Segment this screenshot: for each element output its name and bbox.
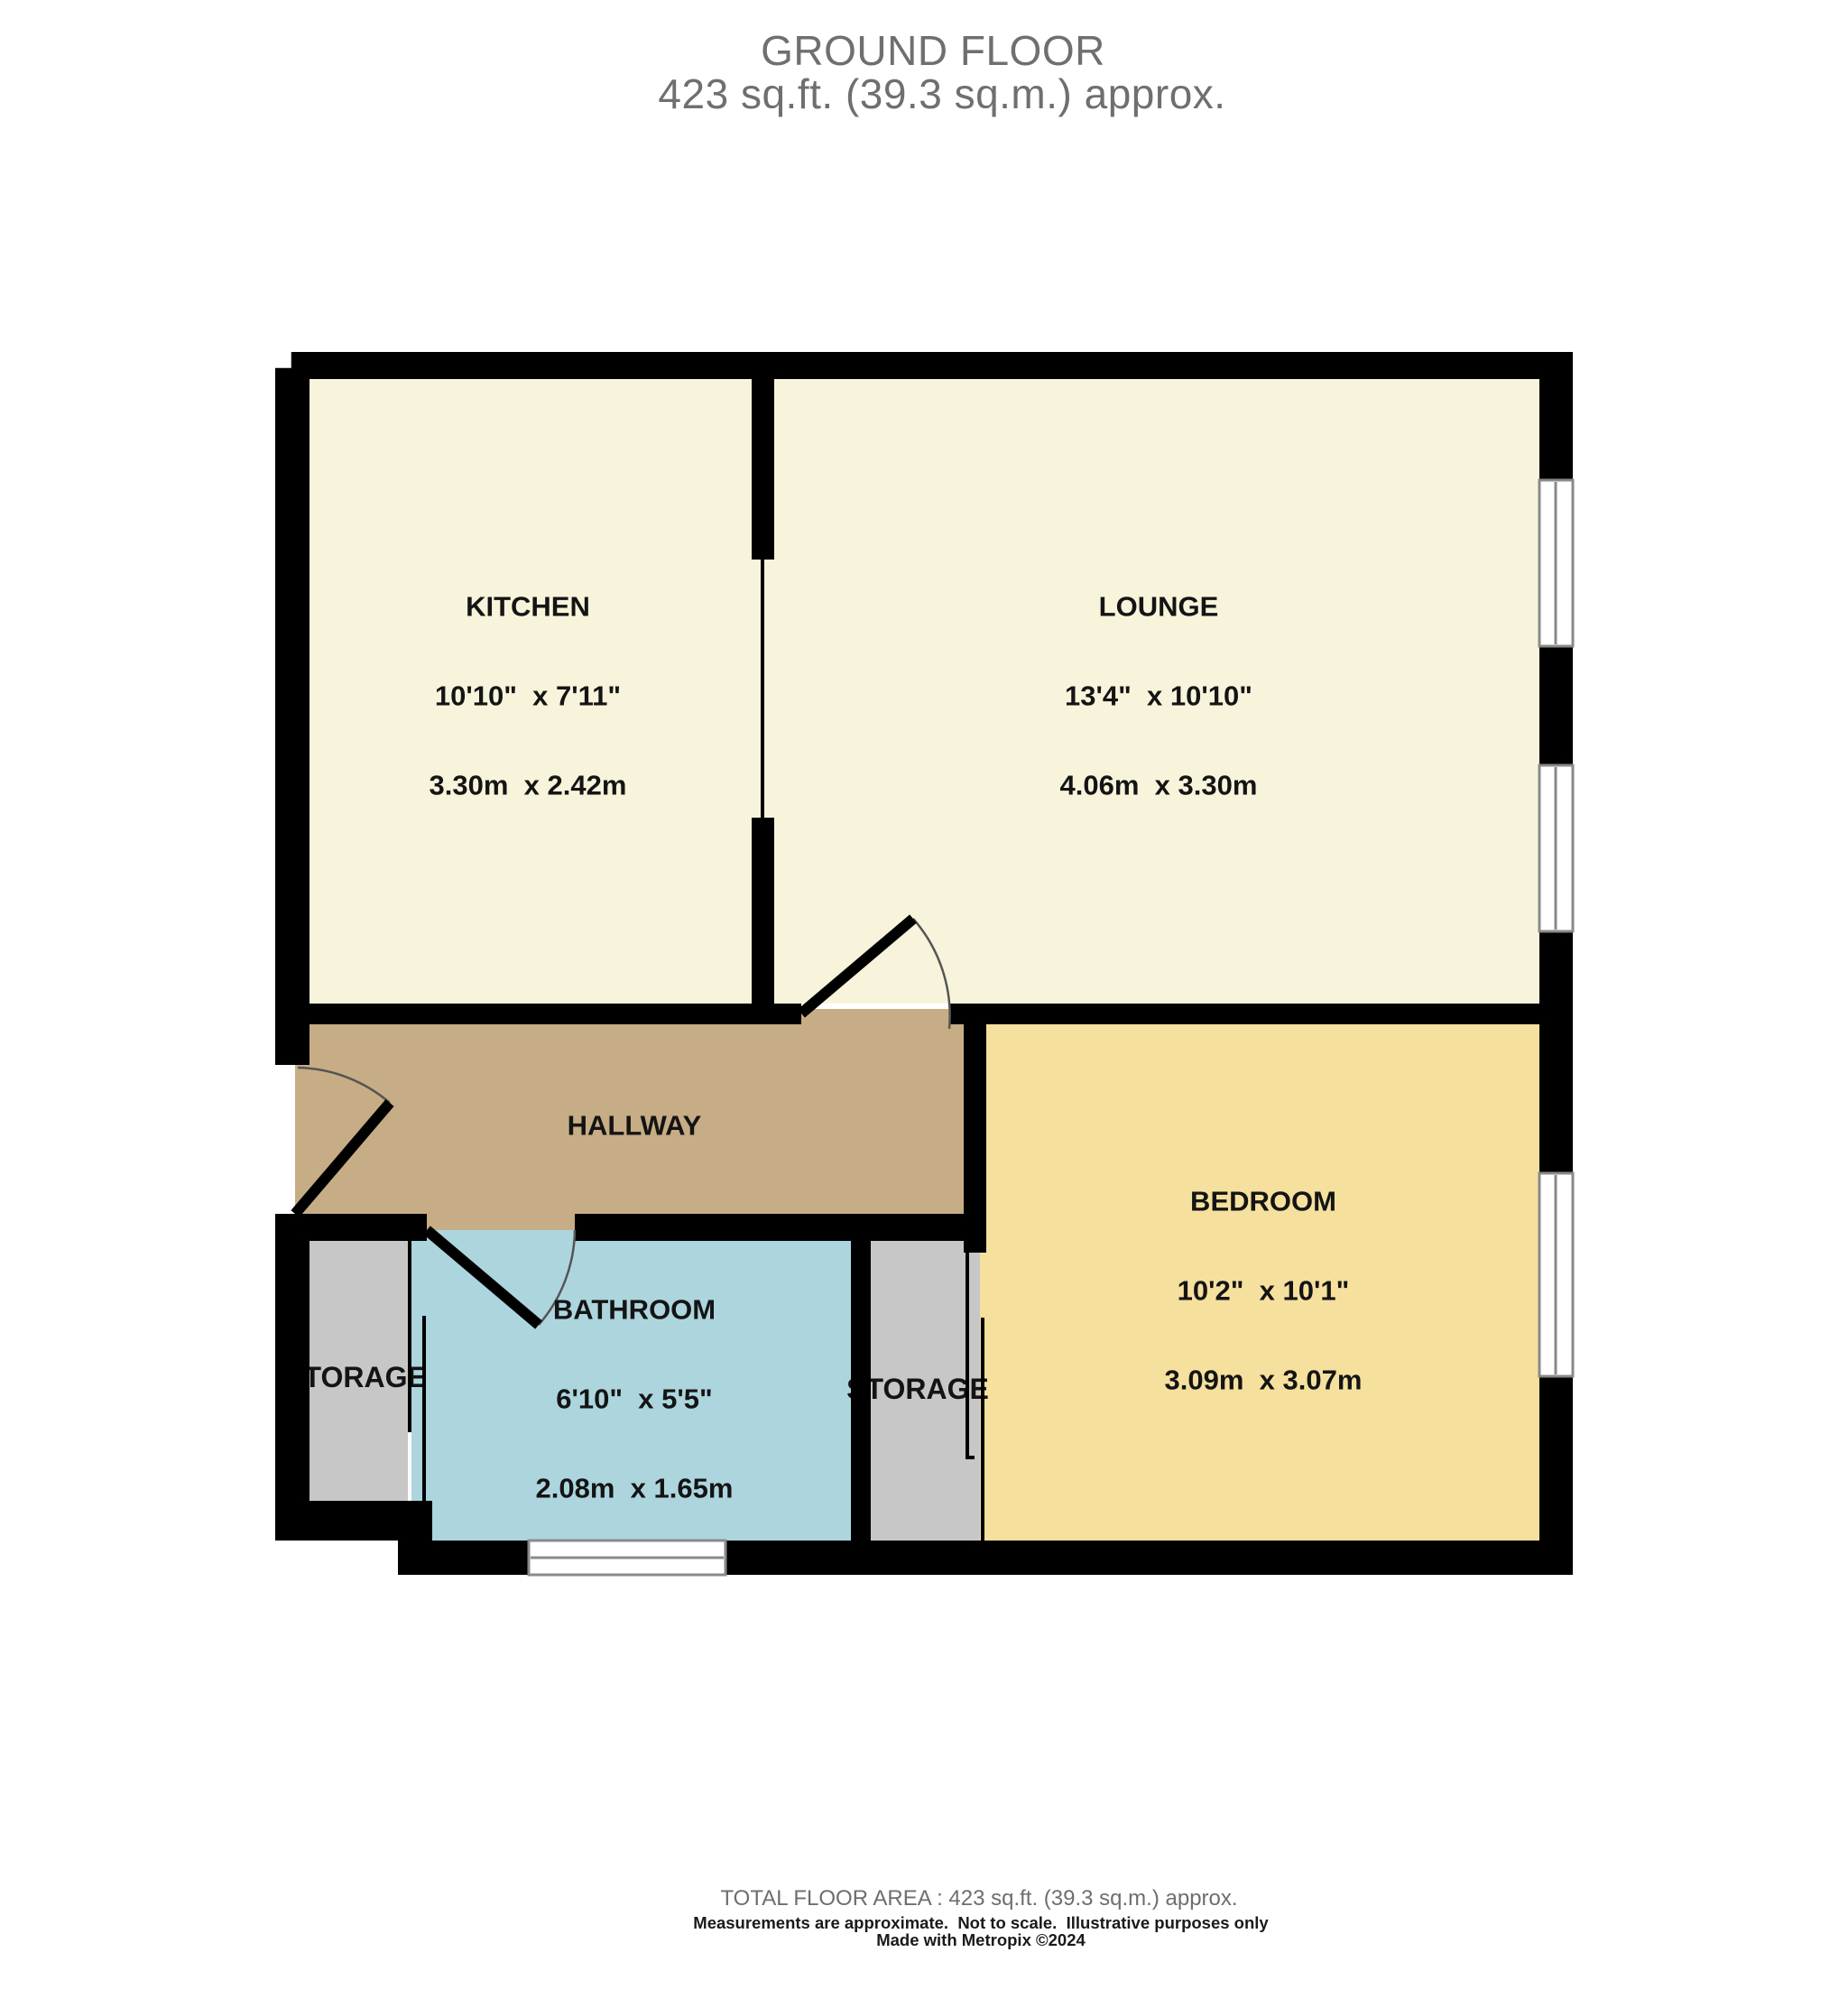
room-name: KITCHEN	[430, 592, 627, 622]
wall-storage-left-bottom	[275, 1501, 432, 1541]
wall-corner-notch	[275, 352, 292, 369]
room-dims-imperial: 13'4" x 10'10"	[1060, 681, 1258, 711]
page-subtitle: 423 sq.ft. (39.3 sq.m.) approx.	[658, 69, 1225, 118]
room-name: BEDROOM	[1165, 1187, 1363, 1217]
room-dims-imperial: 10'2" x 10'1"	[1165, 1276, 1363, 1306]
wall-kitchen-lounge-lower	[752, 818, 774, 1004]
room-dims-metric: 4.06m x 3.30m	[1060, 771, 1258, 800]
wall-left-lower	[275, 1214, 310, 1541]
wall-right-above-window1	[1539, 379, 1573, 480]
room-name: LOUNGE	[1060, 592, 1258, 622]
wall-left-upper	[275, 379, 310, 1065]
room-name: BATHROOM	[536, 1295, 734, 1325]
footer-total-area: TOTAL FLOOR AREA : 423 sq.ft. (39.3 sq.m…	[720, 1886, 1237, 1911]
room-dims-metric: 3.30m x 2.42m	[430, 771, 627, 800]
lounge-window-lower	[1539, 765, 1573, 931]
wall-hallway-bottom-left	[275, 1214, 427, 1241]
page-title: GROUND FLOOR	[761, 26, 1105, 75]
wall-bottom-step	[398, 1541, 529, 1575]
bedroom-window	[1539, 1173, 1573, 1376]
footer-credit: Made with Metropix ©2024	[876, 1930, 1086, 1950]
lounge-door-gap-floor	[801, 1009, 949, 1214]
floorplan-drawing: STORAGE STORAGE	[0, 0, 1848, 2008]
wall-top	[275, 352, 1573, 379]
wall-mid-right	[949, 1004, 1573, 1024]
room-label-lounge: LOUNGE 13'4" x 10'10" 4.06m x 3.30m	[1060, 532, 1258, 860]
wall-kitchen-lounge-upper	[752, 379, 774, 560]
room-label-bathroom: BATHROOM 6'10" x 5'5" 2.08m x 1.65m	[536, 1235, 734, 1563]
floorplan-page: STORAGE STORAGE	[0, 0, 1848, 2008]
room-name: HALLWAY	[568, 1111, 702, 1141]
lounge-window-upper	[1539, 480, 1573, 646]
wall-right-middle	[1539, 931, 1573, 1173]
room-dims-imperial: 6'10" x 5'5"	[536, 1384, 734, 1414]
wall-bottom-right	[725, 1541, 1573, 1575]
room-dims-metric: 3.09m x 3.07m	[1165, 1365, 1363, 1395]
bathroom-door-gap-floor	[427, 1214, 575, 1230]
room-dims-imperial: 10'10" x 7'11"	[430, 681, 627, 711]
room-dims-metric: 2.08m x 1.65m	[536, 1474, 734, 1504]
room-label-bedroom: BEDROOM 10'2" x 10'1" 3.09m x 3.07m	[1165, 1127, 1363, 1455]
wall-bathroom-storage	[851, 1241, 871, 1575]
wall-mid-left	[275, 1004, 801, 1024]
wall-right-between-windows	[1539, 646, 1573, 765]
room-label-kitchen: KITCHEN 10'10" x 7'11" 3.30m x 2.42m	[430, 532, 627, 860]
room-label-hallway: HALLWAY	[568, 1051, 702, 1200]
